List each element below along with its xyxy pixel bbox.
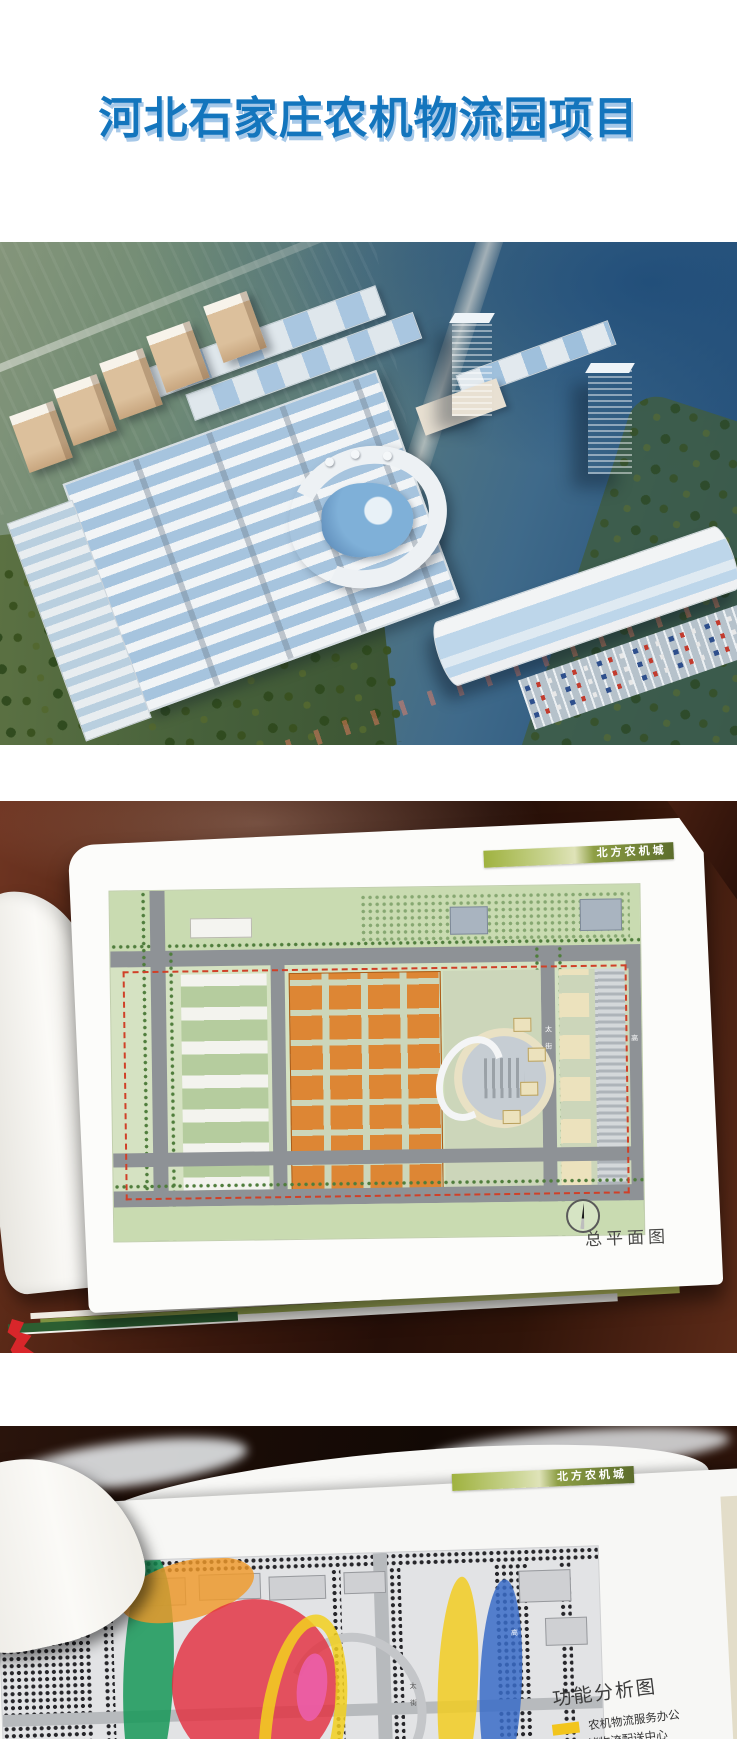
building-footprint [518, 1569, 571, 1603]
plan-caption: 总平面图 [585, 1222, 670, 1250]
glass-tower [452, 320, 492, 416]
arc-exhibition-building [277, 434, 459, 600]
street-name-label: 太街 [542, 1025, 552, 1059]
green-field-strip [114, 1200, 644, 1241]
book-page: 北方农机城 [68, 817, 724, 1313]
legend-swatch [552, 1721, 580, 1735]
page: 河北石家庄农机物流园项目 [0, 0, 737, 1739]
street-name-label: 高 [508, 1629, 519, 1646]
banner-label: 北方农机城 [596, 844, 667, 860]
building-footprint [545, 1617, 588, 1646]
banner-label: 北方农机城 [557, 1468, 628, 1484]
north-building [190, 918, 252, 939]
building-footprint [268, 1575, 326, 1601]
building-footprint [343, 1571, 386, 1594]
aerial-rendering-photo [0, 242, 737, 745]
master-plan-map: 太街 高 [109, 884, 644, 1241]
office-building [450, 906, 488, 935]
red-dashed-boundary [123, 964, 630, 1200]
zone-yellow-east [434, 1576, 482, 1739]
office-building [580, 898, 622, 931]
street-name-label: 太街 [407, 1682, 418, 1716]
master-plan-book-photo: 北方农机城 [0, 801, 737, 1353]
glass-tower [588, 370, 632, 474]
street-name-label: 高 [629, 1034, 639, 1051]
page-title: 河北石家庄农机物流园项目 [0, 82, 737, 146]
page-banner: 北方农机城 [483, 842, 674, 868]
analysis-book-photo: 太街 高 北方农机城 功能分析图 农机物流服务办公 仓储物流配送中心 [0, 1426, 737, 1739]
